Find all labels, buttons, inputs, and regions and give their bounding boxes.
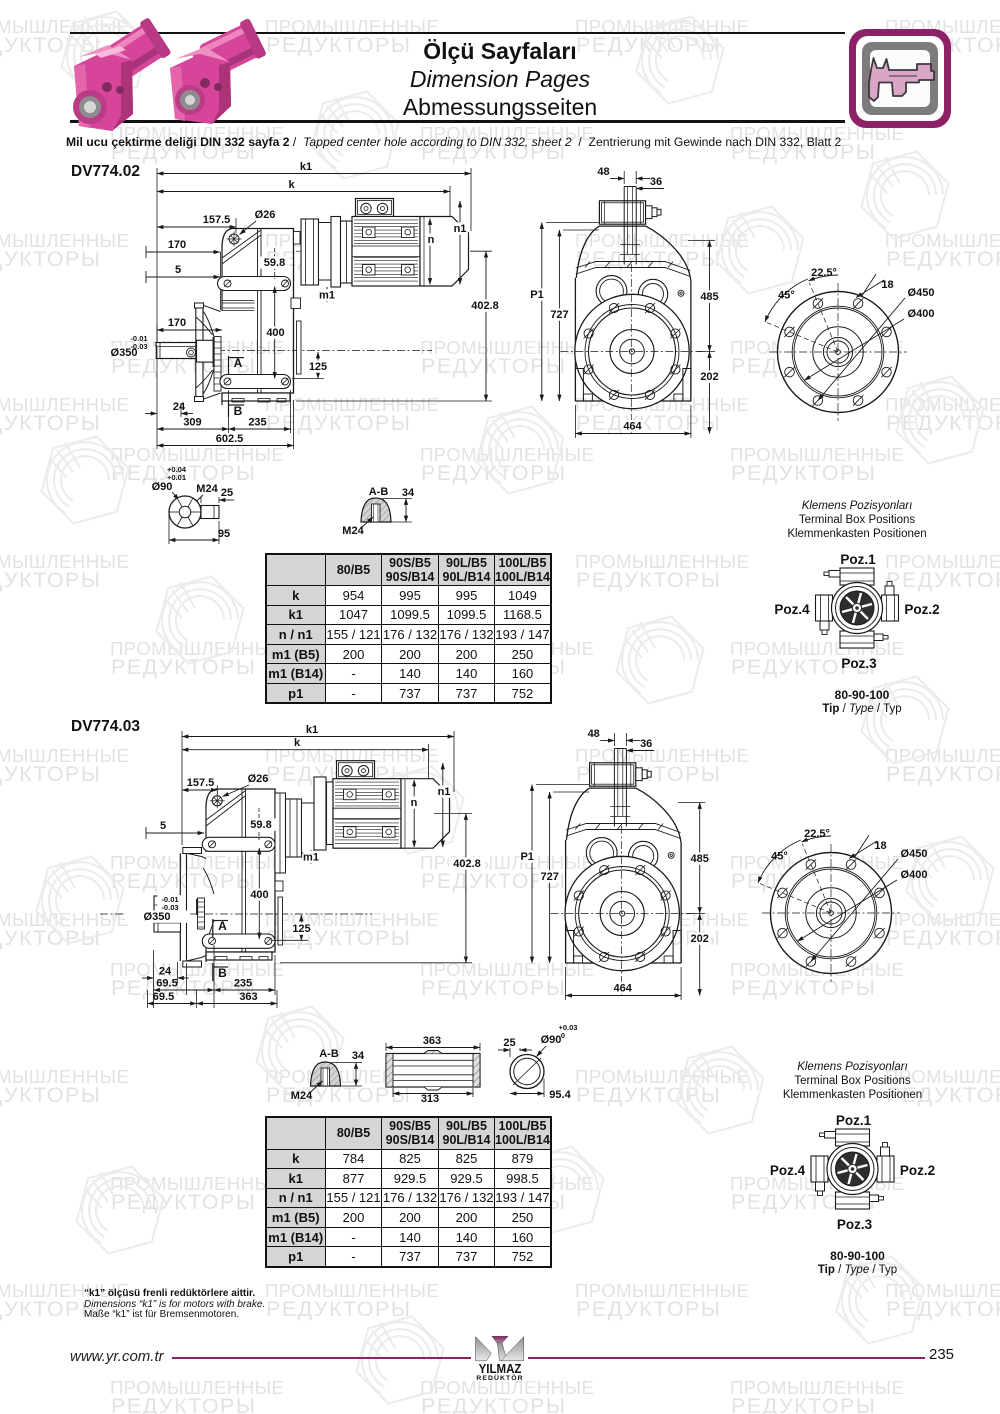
- svg-text:202: 202: [691, 933, 709, 945]
- svg-text:n1: n1: [438, 786, 451, 798]
- svg-text:B: B: [218, 966, 227, 980]
- svg-text:Ø90: Ø90: [541, 1034, 562, 1046]
- svg-text:157.5: 157.5: [187, 777, 215, 789]
- svg-text:A: A: [234, 356, 243, 370]
- svg-text:M24: M24: [291, 1090, 313, 1102]
- svg-text:727: 727: [541, 871, 559, 883]
- svg-text:B: B: [234, 404, 243, 418]
- svg-text:0: 0: [561, 1031, 565, 1040]
- svg-text:n: n: [428, 234, 435, 246]
- svg-text:18: 18: [874, 840, 886, 852]
- svg-text:45°: 45°: [771, 851, 788, 863]
- svg-text:M24: M24: [342, 525, 364, 537]
- svg-text:48: 48: [597, 166, 609, 178]
- svg-text:485: 485: [700, 291, 718, 303]
- svg-text:A: A: [218, 919, 227, 933]
- svg-text:5: 5: [175, 264, 181, 276]
- svg-text:Ø400: Ø400: [901, 869, 928, 881]
- svg-text:k: k: [288, 179, 295, 191]
- svg-text:45°: 45°: [778, 290, 795, 302]
- svg-text:400: 400: [266, 327, 284, 339]
- svg-text:202: 202: [700, 371, 718, 383]
- svg-text:363: 363: [423, 1035, 441, 1047]
- svg-text:485: 485: [691, 853, 709, 865]
- svg-text:Ø26: Ø26: [248, 773, 269, 785]
- svg-text:34: 34: [402, 487, 415, 499]
- svg-text:22.5°: 22.5°: [804, 828, 830, 840]
- svg-text:24: 24: [173, 401, 186, 413]
- svg-text:34: 34: [352, 1050, 365, 1062]
- svg-text:Tip / Type / Typ: Tip / Type / Typ: [822, 703, 901, 715]
- svg-text:-0.03: -0.03: [130, 342, 147, 351]
- svg-text:Ø400: Ø400: [908, 308, 935, 320]
- svg-text:727: 727: [550, 309, 568, 321]
- svg-text:170: 170: [168, 317, 186, 329]
- svg-text:25: 25: [221, 487, 233, 499]
- svg-text:Tip / Type / Typ: Tip / Type / Typ: [818, 1264, 897, 1276]
- svg-text:18: 18: [881, 279, 893, 291]
- svg-text:k1: k1: [300, 161, 312, 173]
- svg-text:Poz.4: Poz.4: [770, 1163, 806, 1178]
- svg-text:k1: k1: [306, 724, 318, 736]
- svg-text:Ø26: Ø26: [255, 209, 276, 221]
- svg-text:Poz.1: Poz.1: [840, 552, 876, 567]
- svg-text:Terminal Box Positions: Terminal Box Positions: [794, 1075, 911, 1087]
- svg-text:235: 235: [248, 417, 266, 429]
- svg-text:Terminal Box Positions: Terminal Box Positions: [799, 514, 916, 526]
- svg-text:m1: m1: [319, 290, 335, 302]
- svg-text:P1: P1: [530, 289, 543, 301]
- svg-text:A-B: A-B: [369, 486, 389, 498]
- svg-text:22.5°: 22.5°: [811, 267, 837, 279]
- svg-text:157.5: 157.5: [203, 214, 231, 226]
- svg-text:A-B: A-B: [319, 1048, 339, 1060]
- svg-text:95.4: 95.4: [549, 1089, 571, 1101]
- svg-text:363: 363: [239, 991, 257, 1003]
- svg-text:k: k: [294, 737, 301, 749]
- svg-text:Poz.1: Poz.1: [836, 1113, 872, 1128]
- svg-text:80-90-100: 80-90-100: [835, 688, 890, 702]
- svg-text:Ø350: Ø350: [144, 911, 171, 923]
- svg-text:69.5: 69.5: [156, 978, 177, 990]
- svg-text:313: 313: [421, 1093, 439, 1105]
- svg-text:n: n: [411, 797, 418, 809]
- svg-text:59.8: 59.8: [264, 257, 285, 269]
- svg-text:402.8: 402.8: [453, 858, 481, 870]
- svg-text:36: 36: [650, 176, 662, 188]
- svg-text:125: 125: [309, 361, 327, 373]
- svg-text:69.5: 69.5: [153, 991, 174, 1003]
- svg-text:P1: P1: [520, 851, 533, 863]
- svg-text:170: 170: [168, 239, 186, 251]
- svg-text:Poz.4: Poz.4: [774, 602, 810, 617]
- svg-text:n1: n1: [454, 223, 467, 235]
- svg-text:m1: m1: [303, 852, 319, 864]
- svg-text:Klemmenkasten Positionen: Klemmenkasten Positionen: [783, 1089, 922, 1101]
- svg-text:464: 464: [623, 421, 642, 433]
- svg-text:M24: M24: [196, 483, 218, 495]
- svg-text:309: 309: [183, 417, 201, 429]
- svg-text:235: 235: [234, 978, 252, 990]
- svg-text:5: 5: [160, 820, 166, 832]
- svg-text:125: 125: [292, 923, 310, 935]
- svg-text:25: 25: [503, 1037, 515, 1049]
- svg-text:464: 464: [614, 983, 633, 995]
- svg-text:Ø450: Ø450: [908, 287, 935, 299]
- svg-text:400: 400: [250, 889, 268, 901]
- svg-text:36: 36: [640, 738, 652, 750]
- svg-text:59.8: 59.8: [250, 819, 271, 831]
- svg-text:80-90-100: 80-90-100: [830, 1249, 885, 1263]
- svg-text:48: 48: [588, 728, 600, 740]
- svg-text:Ø90: Ø90: [152, 481, 173, 493]
- svg-text:Klemens Pozisyonları: Klemens Pozisyonları: [797, 1061, 908, 1073]
- svg-text:Klemens Pozisyonları: Klemens Pozisyonları: [802, 500, 913, 512]
- svg-text:Poz.3: Poz.3: [837, 1217, 873, 1232]
- svg-text:Klemmenkasten Positionen: Klemmenkasten Positionen: [787, 528, 926, 540]
- svg-text:24: 24: [159, 966, 172, 978]
- svg-text:Ø450: Ø450: [901, 848, 928, 860]
- svg-text:Poz.3: Poz.3: [841, 656, 877, 671]
- svg-text:Poz.2: Poz.2: [904, 602, 939, 617]
- svg-text:95: 95: [218, 528, 230, 540]
- svg-text:402.8: 402.8: [471, 300, 499, 312]
- svg-text:602.5: 602.5: [216, 433, 244, 445]
- svg-text:Poz.2: Poz.2: [900, 1163, 935, 1178]
